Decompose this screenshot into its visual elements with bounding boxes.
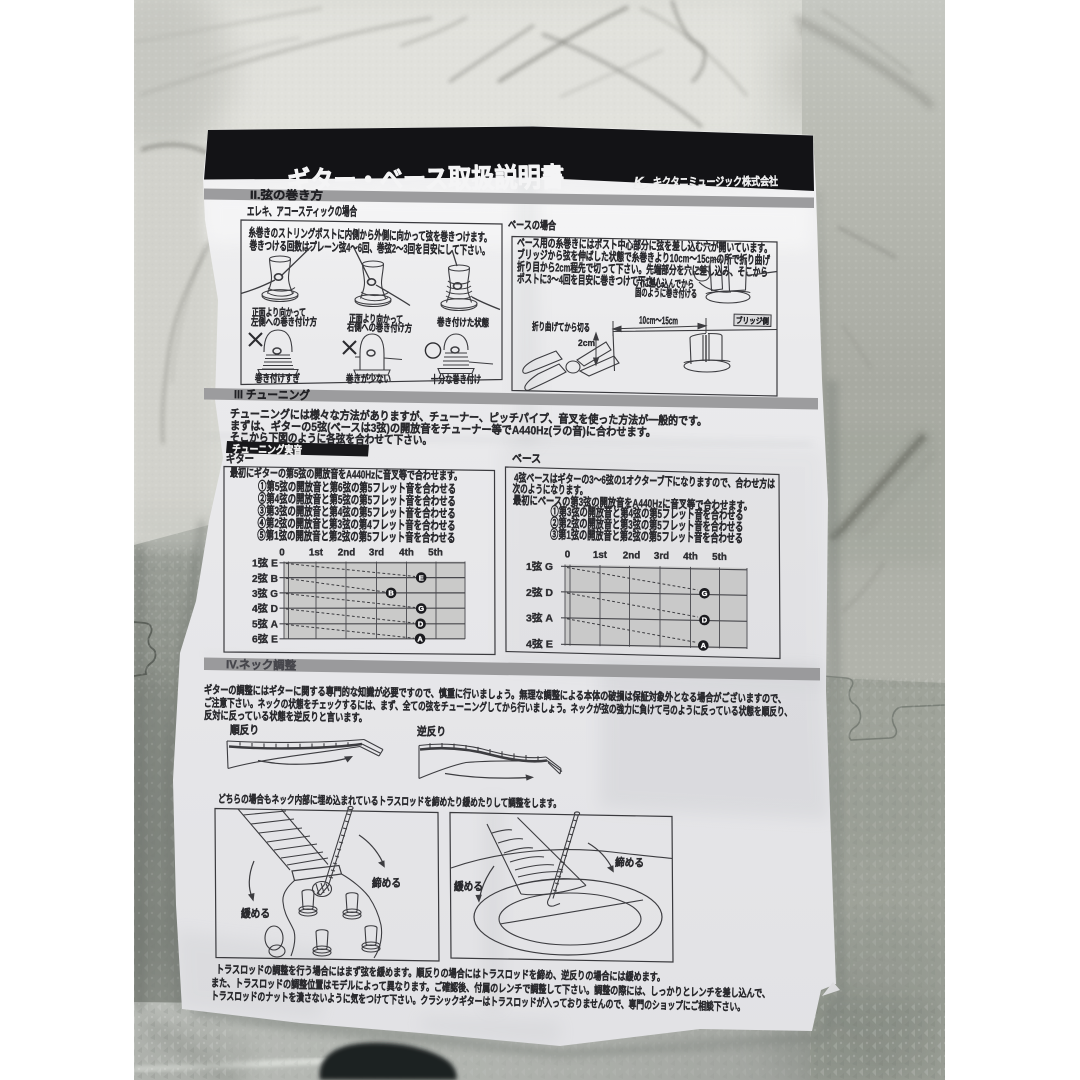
svg-text:ブリッジ側: ブリッジ側 bbox=[736, 315, 769, 326]
svg-text:II.弦の巻き方: II.弦の巻き方 bbox=[250, 188, 323, 203]
svg-text:締める: 締める bbox=[372, 876, 401, 890]
svg-text:エレキ、アコースティックの場合: エレキ、アコースティックの場合 bbox=[247, 205, 357, 219]
svg-text:巻き付けすぎ: 巻き付けすぎ bbox=[254, 372, 300, 385]
svg-text:IV.ネック調整: IV.ネック調整 bbox=[226, 657, 296, 672]
svg-text:順反り: 順反り bbox=[230, 723, 259, 737]
svg-text:締める: 締める bbox=[615, 855, 644, 870]
svg-text:D: D bbox=[702, 616, 708, 625]
svg-text:2nd: 2nd bbox=[338, 548, 355, 559]
svg-text:4弦 D: 4弦 D bbox=[252, 602, 278, 615]
svg-text:A: A bbox=[417, 635, 423, 644]
svg-text:ベースの場合: ベースの場合 bbox=[508, 218, 557, 233]
svg-text:1st: 1st bbox=[309, 548, 324, 559]
svg-text:3弦 G: 3弦 G bbox=[252, 587, 278, 600]
svg-text:4th: 4th bbox=[399, 548, 414, 559]
svg-text:B: B bbox=[388, 589, 394, 598]
svg-text:2弦 B: 2弦 B bbox=[252, 572, 278, 585]
svg-text:ギター: ギター bbox=[226, 452, 254, 466]
svg-text:K: K bbox=[634, 174, 645, 189]
svg-text:5th: 5th bbox=[428, 548, 443, 559]
svg-text:左側への巻き付け方: 左側への巻き付け方 bbox=[250, 316, 317, 329]
svg-text:G: G bbox=[702, 589, 708, 598]
svg-text:10cm〜15cm: 10cm〜15cm bbox=[639, 315, 678, 328]
svg-text:十分な巻き付け: 十分な巻き付け bbox=[431, 373, 481, 386]
svg-text:3rd: 3rd bbox=[654, 551, 669, 562]
svg-text:III チューニング: III チューニング bbox=[234, 387, 310, 402]
svg-text:5弦 A: 5弦 A bbox=[252, 617, 278, 630]
svg-text:2弦 D: 2弦 D bbox=[526, 586, 554, 599]
svg-text:5th: 5th bbox=[712, 552, 727, 563]
svg-text:3rd: 3rd bbox=[369, 548, 384, 559]
svg-text:2nd: 2nd bbox=[623, 551, 640, 562]
svg-text:ベース: ベース bbox=[512, 453, 541, 466]
svg-text:緩める: 緩める bbox=[241, 906, 270, 920]
svg-text:1弦 E: 1弦 E bbox=[252, 557, 278, 570]
svg-text:3弦 A: 3弦 A bbox=[526, 612, 554, 625]
svg-text:D: D bbox=[418, 620, 424, 629]
svg-text:0: 0 bbox=[565, 550, 571, 561]
svg-text:2cm: 2cm bbox=[578, 338, 595, 348]
svg-text:G: G bbox=[418, 604, 424, 613]
svg-text:⑤第1弦の開放音と第2弦の第5フレット音を合わせる: ⑤第1弦の開放音と第2弦の第5フレット音を合わせる bbox=[257, 527, 455, 545]
svg-text:4th: 4th bbox=[683, 552, 698, 563]
svg-text:キクタニミュージック株式会社: キクタニミュージック株式会社 bbox=[653, 174, 779, 189]
svg-text:緩める: 緩める bbox=[454, 879, 483, 893]
svg-text:4弦 E: 4弦 E bbox=[526, 637, 553, 650]
svg-text:6弦 E: 6弦 E bbox=[252, 633, 278, 646]
svg-text:逆反り: 逆反り bbox=[417, 724, 446, 738]
svg-text:E: E bbox=[419, 573, 424, 582]
svg-text:巻き付けた状態: 巻き付けた状態 bbox=[436, 315, 489, 329]
svg-text:折り曲げてから切る: 折り曲げてから切る bbox=[532, 320, 590, 334]
svg-text:巻きが少ない: 巻きが少ない bbox=[345, 373, 391, 386]
svg-text:0: 0 bbox=[279, 548, 285, 559]
svg-text:1st: 1st bbox=[593, 550, 608, 561]
svg-text:1弦 G: 1弦 G bbox=[526, 560, 553, 573]
svg-text:A: A bbox=[701, 641, 707, 650]
